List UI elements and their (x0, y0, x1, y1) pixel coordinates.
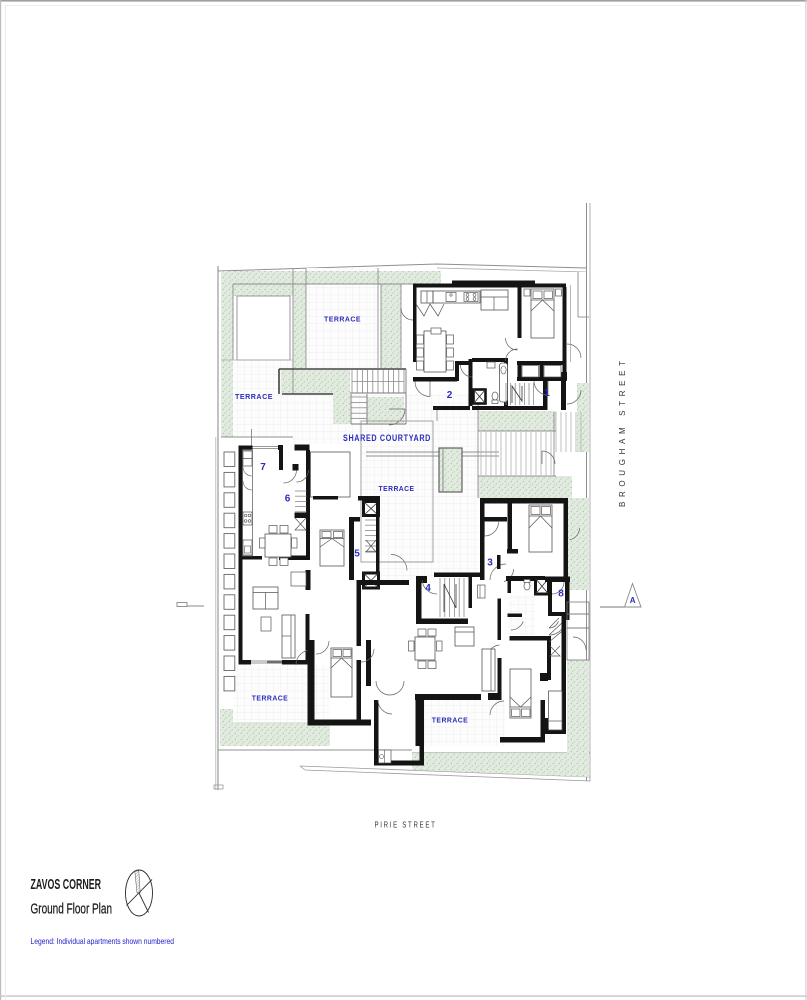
svg-text:BROUGHAM STREET: BROUGHAM STREET (618, 357, 627, 507)
svg-text:TERRACE: TERRACE (379, 484, 415, 493)
svg-text:A: A (630, 596, 636, 605)
svg-text:2: 2 (447, 390, 453, 401)
svg-text:5: 5 (354, 549, 360, 560)
svg-text:TERRACE: TERRACE (432, 716, 469, 725)
svg-text:8: 8 (558, 589, 564, 600)
svg-text:Legend: Individual apartments: Legend: Individual apartments shown numb… (31, 936, 175, 946)
svg-text:SHARED COURTYARD: SHARED COURTYARD (343, 433, 431, 443)
svg-text:TERRACE: TERRACE (324, 315, 361, 324)
svg-text:ZAVOS CORNER: ZAVOS CORNER (31, 877, 102, 893)
svg-text:Ground Floor Plan: Ground Floor Plan (31, 902, 113, 918)
svg-text:1: 1 (544, 388, 550, 399)
svg-text:TERRACE: TERRACE (252, 694, 289, 703)
svg-text:3: 3 (487, 558, 493, 569)
svg-text:4: 4 (425, 583, 431, 594)
svg-text:PIRIE STREET: PIRIE STREET (375, 821, 437, 830)
svg-text:7: 7 (260, 462, 266, 473)
svg-text:6: 6 (285, 494, 291, 505)
svg-text:TERRACE: TERRACE (235, 392, 273, 401)
